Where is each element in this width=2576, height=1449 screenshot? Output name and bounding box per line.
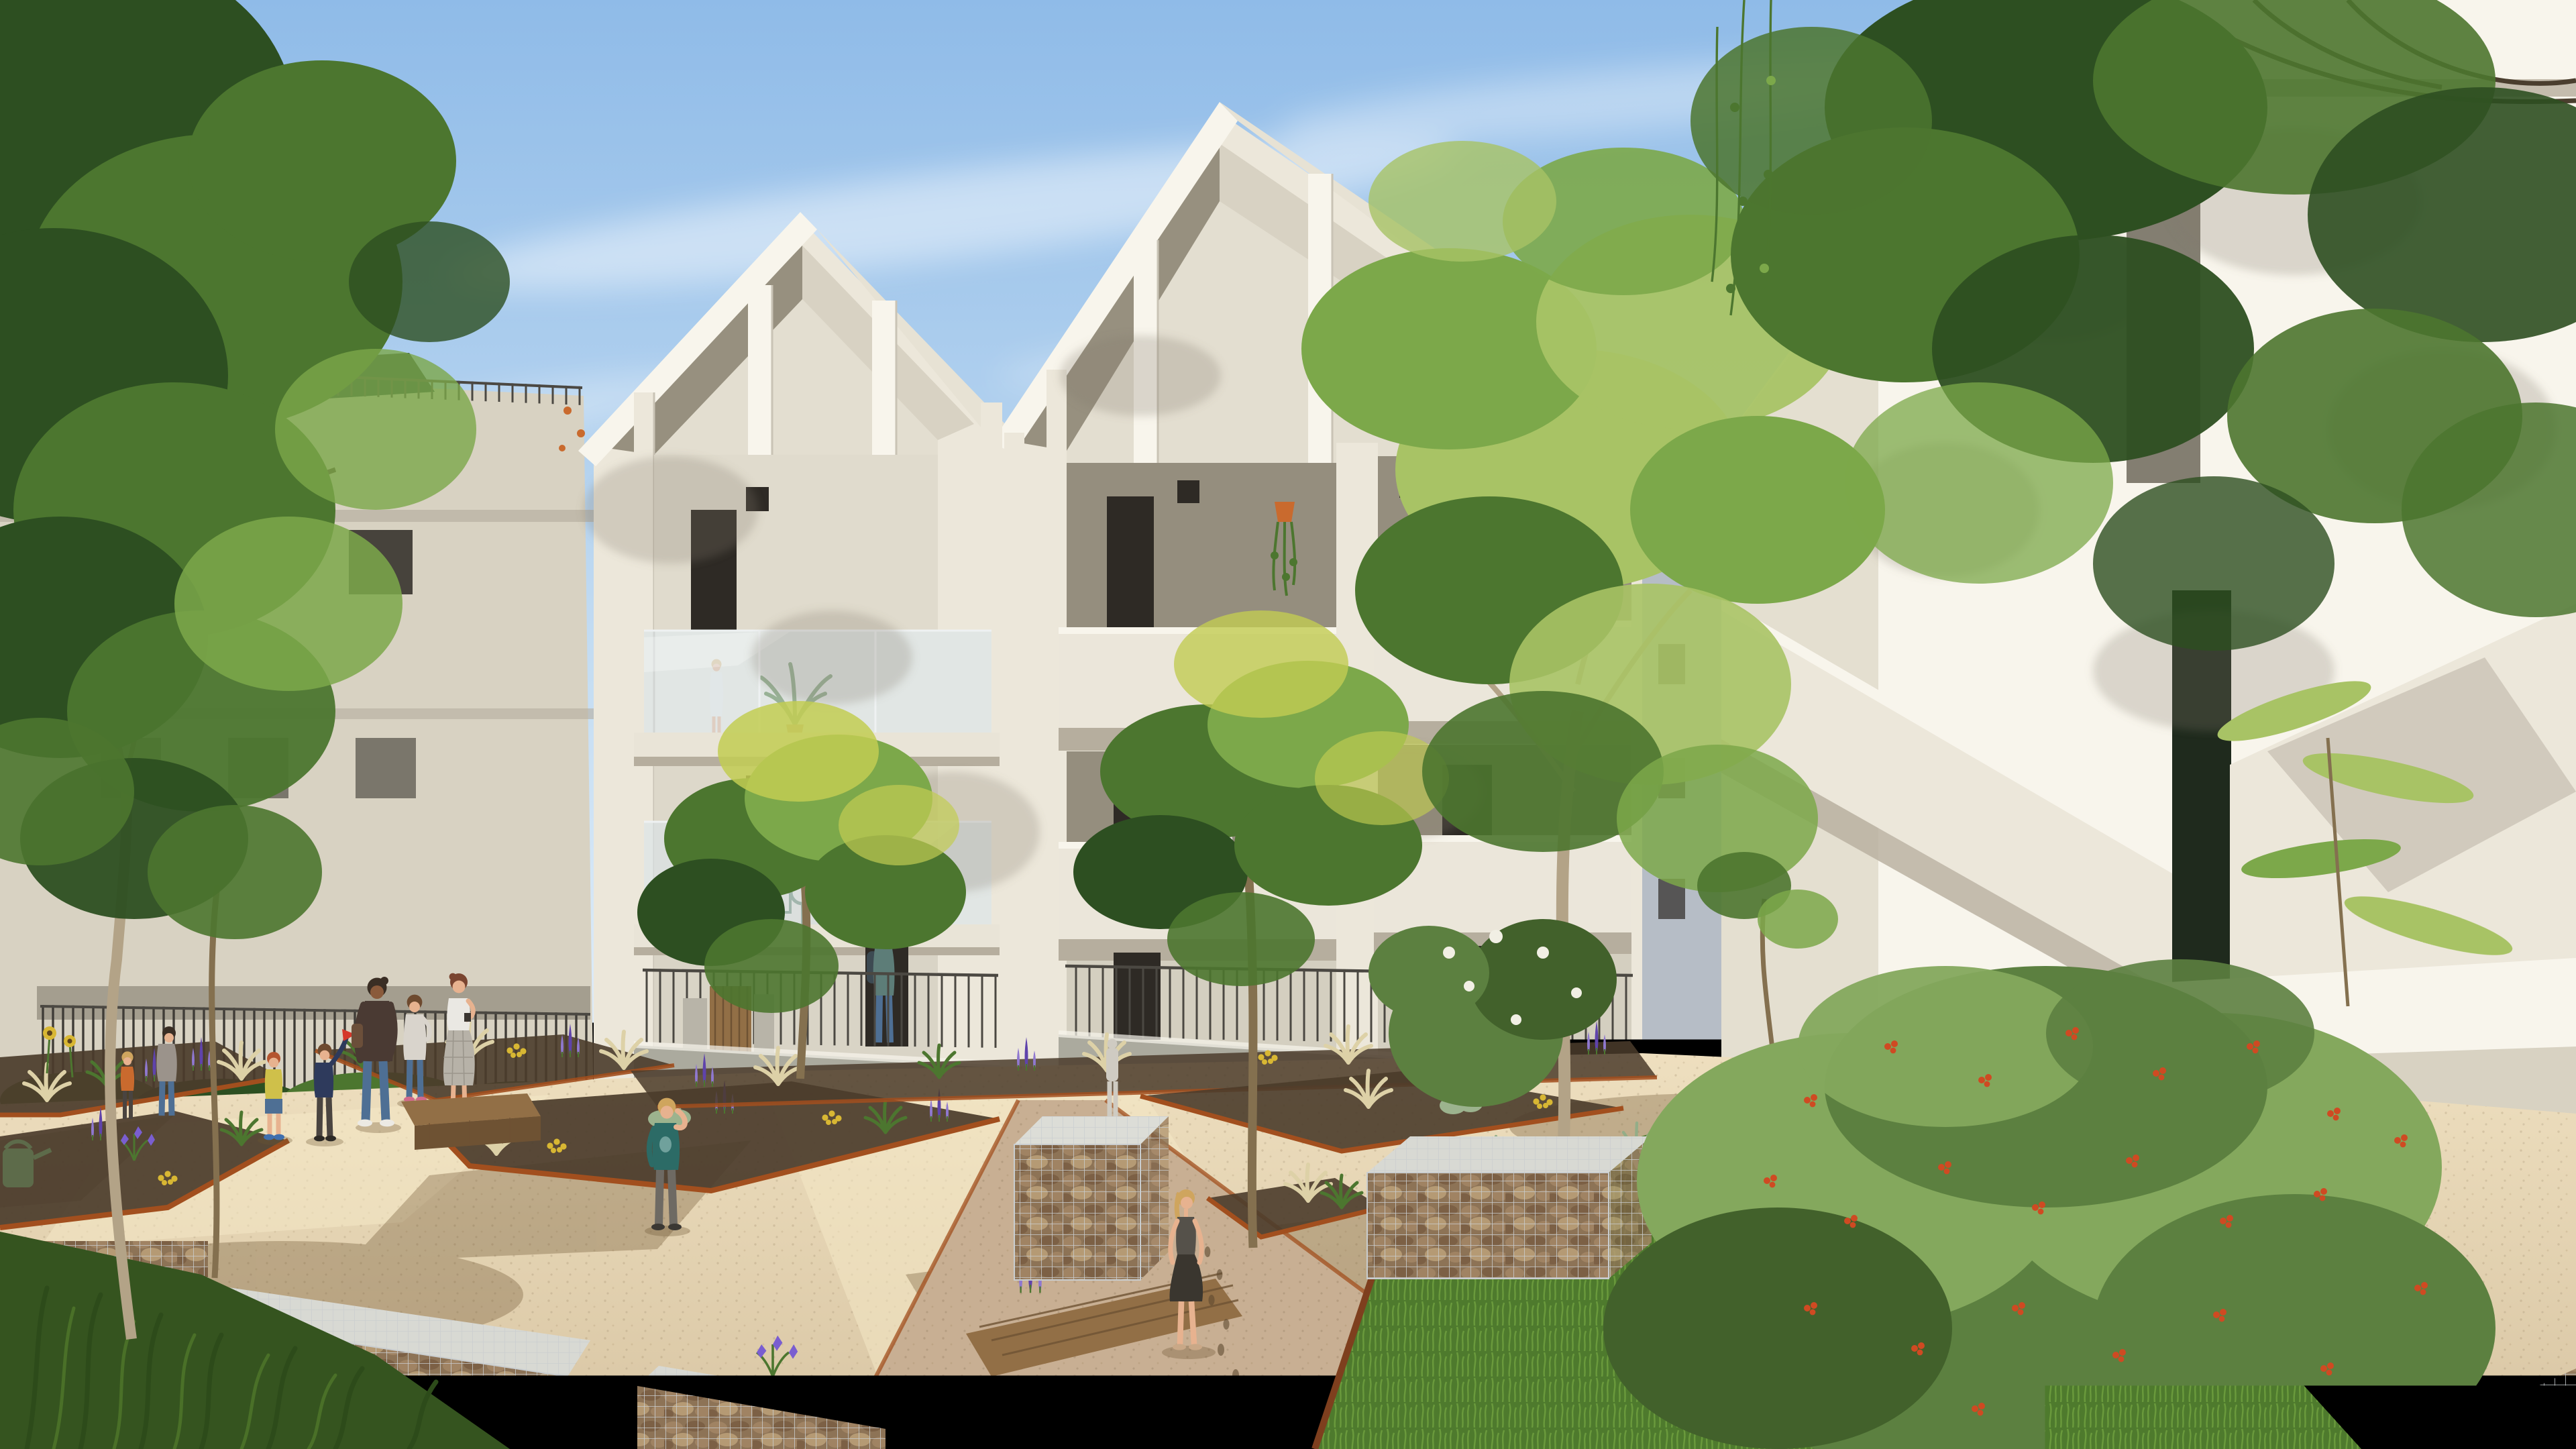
courtyard-scene xyxy=(0,0,2576,1449)
wood-bench-small xyxy=(401,1093,541,1150)
gabion-bench-right xyxy=(1367,1136,1652,1279)
gabion-cube-path xyxy=(1014,1116,1169,1280)
architectural-render-image xyxy=(0,0,2576,1449)
wall-lamp-icon xyxy=(1177,480,1199,503)
